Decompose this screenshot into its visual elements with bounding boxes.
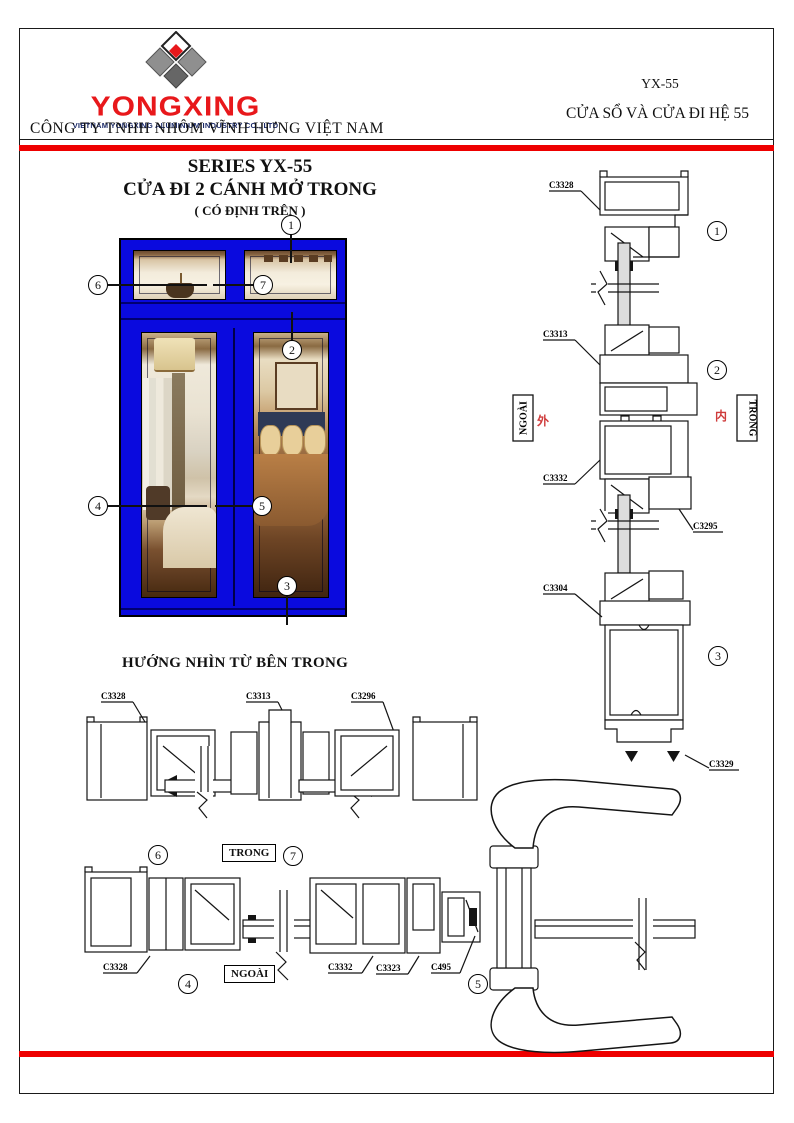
leader-line-2	[291, 312, 293, 340]
lamp-detail	[154, 338, 195, 372]
vertical-section-drawing: C3328 C3313 C3332 C3295 C3304 C3329 NGOÀ…	[497, 165, 775, 787]
wall-art-detail	[275, 362, 318, 410]
company-logo: YONGXING VIETNAM YONGXING ALUMINIUM INDU…	[58, 31, 293, 130]
pillow-detail	[282, 425, 303, 456]
drawing-sheet: YONGXING VIETNAM YONGXING ALUMINIUM INDU…	[0, 0, 794, 1123]
logo-wordmark: YONGXING	[58, 95, 293, 119]
profile-label-c3313-v: C3313	[543, 329, 568, 339]
profile-label-c3304-v: C3304	[543, 583, 568, 593]
plan-section-bottom-drawing: C3328 C3332 C3323 C495	[83, 770, 708, 1055]
chair-detail	[146, 486, 170, 520]
title-note: ( CÓ ĐỊNH TRÊN )	[95, 203, 405, 219]
header-red-bar	[19, 145, 774, 151]
callout-6-section: 6	[148, 845, 168, 865]
header-divider-line	[19, 139, 774, 140]
profile-label-c3328-v: C3328	[549, 180, 574, 190]
series-title: SERIES YX-55	[95, 156, 405, 178]
right-leaf-glass	[253, 332, 329, 598]
profile-label-c3295-v: C3295	[693, 521, 718, 531]
leader-line-1	[290, 235, 292, 263]
callout-2-section: 2	[707, 360, 727, 380]
profile-label-c3328-plan-top: C3328	[101, 691, 126, 701]
outside-cn-label: 外	[537, 413, 549, 428]
doc-title: CỬA SỔ VÀ CỬA ĐI HỆ 55	[545, 105, 770, 123]
profile-label-c495-plan-bottom: C495	[431, 962, 451, 972]
callout-3-section: 3	[708, 646, 728, 666]
callout-6: 6	[88, 275, 108, 295]
leader-line-5	[215, 505, 252, 507]
callout-5-section: 5	[468, 974, 488, 994]
callout-4-section: 4	[178, 974, 198, 994]
company-name: CÔNG TY TNHH NHÔM VĨNH HƯNG VIỆT NAM	[30, 120, 384, 138]
bedspread-detail	[163, 507, 217, 568]
left-leaf-glass	[141, 332, 217, 598]
callout-1: 1	[281, 215, 301, 235]
callout-7-section: 7	[283, 846, 303, 866]
pillow-detail	[260, 425, 281, 456]
outside-label-plan: NGOÀI	[224, 965, 275, 983]
callout-5: 5	[252, 496, 272, 516]
profile-label-c3332-plan-bottom: C3332	[328, 962, 353, 972]
leader-line-3	[286, 596, 288, 625]
callout-3: 3	[277, 576, 297, 596]
callout-1-section: 1	[707, 221, 727, 241]
drape-detail	[172, 373, 185, 516]
profile-label-c3313-plan-top: C3313	[246, 691, 271, 701]
outside-label-vertical: NGOÀI	[518, 401, 530, 435]
transom-bar-line	[121, 302, 345, 304]
pillow-detail	[304, 425, 325, 456]
profile-label-c3332-v: C3332	[543, 473, 568, 483]
title-block: SERIES YX-55 CỬA ĐI 2 CÁNH MỞ TRONG ( CÓ…	[95, 156, 405, 219]
ceiling-trim-detail	[264, 255, 332, 262]
inside-cn-label: 内	[715, 408, 727, 423]
bottom-rail-line	[121, 608, 345, 610]
callout-2: 2	[282, 340, 302, 360]
logo-diamond-icon	[145, 31, 207, 89]
door-type-title: CỬA ĐI 2 CÁNH MỞ TRONG	[95, 179, 405, 201]
inside-label-plan: TRONG	[222, 844, 276, 862]
profile-label-c3323-plan-bottom: C3323	[376, 963, 401, 973]
transom-bar-line	[121, 318, 345, 320]
leader-line-4	[108, 505, 207, 507]
profile-label-c3329-v: C3329	[709, 759, 734, 769]
plan-view-heading: HƯỚNG NHÌN TỪ BÊN TRONG	[122, 655, 348, 672]
profile-label-c3296-plan-top: C3296	[351, 691, 376, 701]
door-elevation-image	[119, 238, 347, 617]
leader-line-7	[213, 284, 253, 286]
callout-7: 7	[253, 275, 273, 295]
transom-glass-left	[133, 250, 226, 300]
inside-label-vertical: TRONG	[747, 400, 758, 437]
doc-code: YX-55	[555, 76, 765, 92]
callout-4: 4	[88, 496, 108, 516]
meeting-stile-line	[233, 328, 235, 606]
profile-label-c3328-plan-bottom: C3328	[103, 962, 128, 972]
leader-line-6	[108, 284, 207, 286]
